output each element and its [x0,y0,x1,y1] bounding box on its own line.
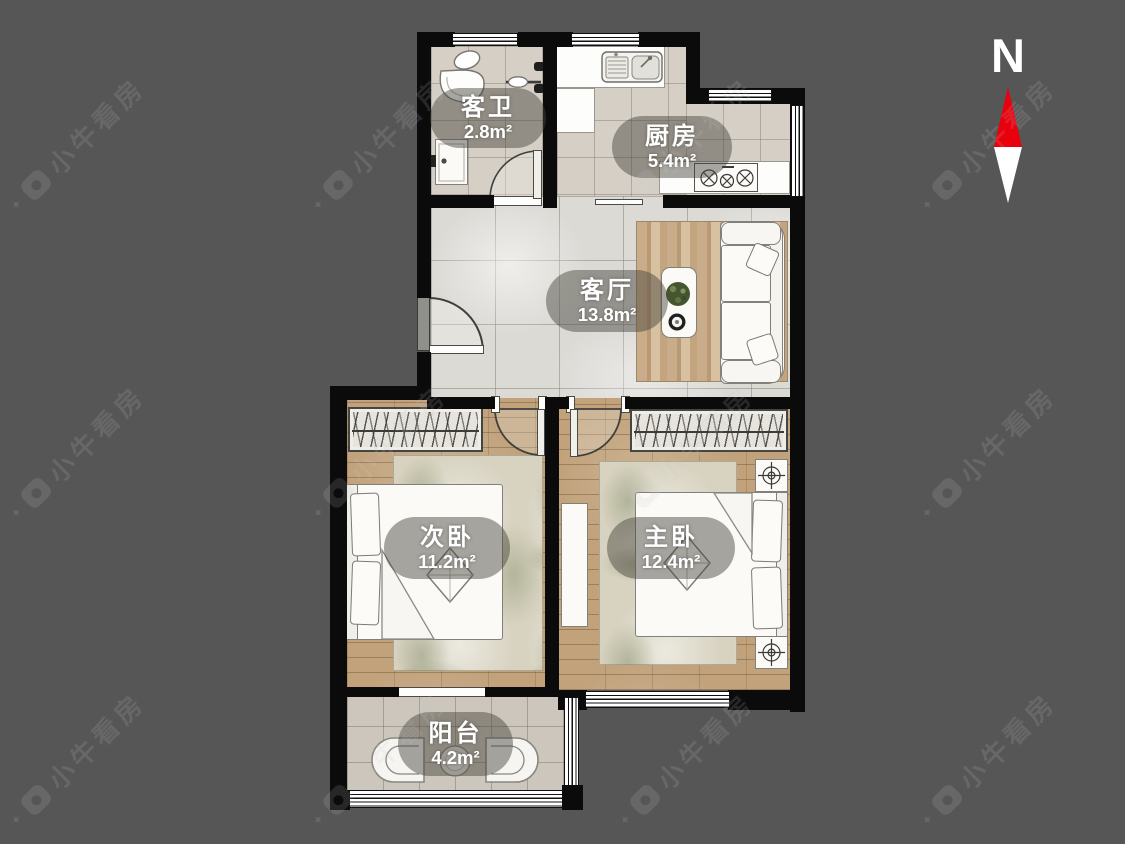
room-area: 2.8m² [464,121,512,143]
room-name: 主卧 [644,524,698,551]
watermark: ✦小牛看房 [910,376,1063,529]
sparkle-icon: ✦ [309,195,328,214]
wall-segment [427,397,495,409]
compass-needle-icon [992,85,1024,205]
room-name: 客卫 [461,94,515,121]
wall-segment [663,195,805,208]
sparkle-icon: ✦ [309,810,328,829]
secondary-bed-pillow-1 [350,493,381,557]
room-label-kitchen: 厨房 5.4m² [612,116,732,178]
sparkle-icon: ✦ [7,810,26,829]
master-bedroom-wardrobe [630,409,788,452]
master-bedroom-dresser [561,503,588,627]
watermark: ✦小牛看房 [0,683,153,836]
watermark-logo-icon [18,782,53,817]
watermark-logo-icon [320,167,355,202]
room-area: 13.8m² [578,304,637,326]
compass: N [968,28,1048,198]
sparkle-icon: ✦ [7,195,26,214]
window-bathroom-top [452,33,518,46]
watermark-logo-icon [929,475,964,510]
master-bed-pillow-2 [751,566,783,629]
watermark-logo-icon [18,475,53,510]
room-area: 11.2m² [418,551,476,573]
watermark-text: 小牛看房 [39,683,153,797]
room-area: 5.4m² [648,150,696,172]
sparkle-icon: ✦ [309,503,328,522]
wall-segment [790,400,805,712]
master-bed-pillow-1 [751,499,783,562]
wall-segment [485,687,545,697]
room-label-master-bedroom: 主卧 12.4m² [607,517,735,579]
master-bedroom-door-leaf [570,409,578,457]
kitchen-passage-sill [595,199,643,205]
wall-segment [543,46,557,208]
room-area: 12.4m² [642,551,701,573]
floor-plan-canvas: 客卫 2.8m² 厨房 5.4m² 客厅 13.8m² 次卧 11.2m² 主卧… [0,0,1125,844]
room-name: 厨房 [645,123,699,150]
kitchen-sink-counter [555,46,665,88]
compass-needle-north [994,87,1022,147]
wardrobe-rail [634,431,784,433]
compass-north-label: N [968,28,1048,83]
wall-segment [545,397,569,409]
watermark: ✦小牛看房 [0,376,153,529]
nightstand-bottom [755,636,788,669]
window-balcony-right [564,697,579,787]
balcony-door-sill [397,687,486,697]
room-label-secondary-bedroom: 次卧 11.2m² [384,517,510,579]
wardrobe-rail [352,430,479,432]
sparkle-icon: ✦ [918,195,937,214]
wall-segment [562,785,583,810]
watermark-logo-icon [929,782,964,817]
bathroom-door-leaf [533,150,542,199]
watermark-logo-icon [929,167,964,202]
watermark-text: 小牛看房 [39,376,153,490]
window-kitchen-right [791,105,804,197]
wall-segment [518,32,573,47]
wall-segment [625,397,790,409]
room-name: 次卧 [420,524,474,551]
room-name: 客厅 [580,277,634,304]
sparkle-icon: ✦ [7,503,26,522]
wall-segment [545,409,559,697]
watermark-logo-icon [627,782,662,817]
entry-door-sill [429,345,484,354]
window-balcony-bottom [348,790,563,808]
room-label-living-room: 客厅 13.8m² [546,270,668,332]
sofa-armrest-bottom [721,360,781,383]
sparkle-icon: ✦ [918,810,937,829]
sofa-armrest-top [721,222,781,245]
window-master-bottom [585,691,730,708]
wall-segment [728,690,805,710]
kitchen-side-counter [555,88,595,133]
wall-segment [417,203,431,298]
watermark: ✦小牛看房 [0,68,153,221]
wall-segment [330,790,350,810]
room-label-balcony: 阳台 4.2m² [398,712,513,776]
nightstand-top [755,459,788,492]
secondary-bed-pillow-2 [350,561,381,626]
room-name: 阳台 [429,720,483,747]
watermark-text: 小牛看房 [950,376,1064,490]
room-area: 4.2m² [431,747,479,769]
watermark-text: 小牛看房 [950,683,1064,797]
sparkle-icon: ✦ [918,503,937,522]
entry-door-leaf [417,297,430,351]
wall-segment [417,32,431,208]
watermark-logo-icon [18,167,53,202]
sparkle-icon: ✦ [616,810,635,829]
watermark-text: 小牛看房 [39,68,153,182]
secondary-bedroom-wardrobe [348,407,483,452]
wall-segment [347,687,399,697]
window-kitchen-top-right [708,89,772,102]
compass-needle-south [994,147,1022,203]
window-kitchen-top [571,33,640,46]
watermark: ✦小牛看房 [910,683,1063,836]
wall-segment [330,386,347,697]
room-label-guest-bathroom: 客卫 2.8m² [430,88,546,148]
secondary-bedroom-door-leaf [537,409,545,456]
